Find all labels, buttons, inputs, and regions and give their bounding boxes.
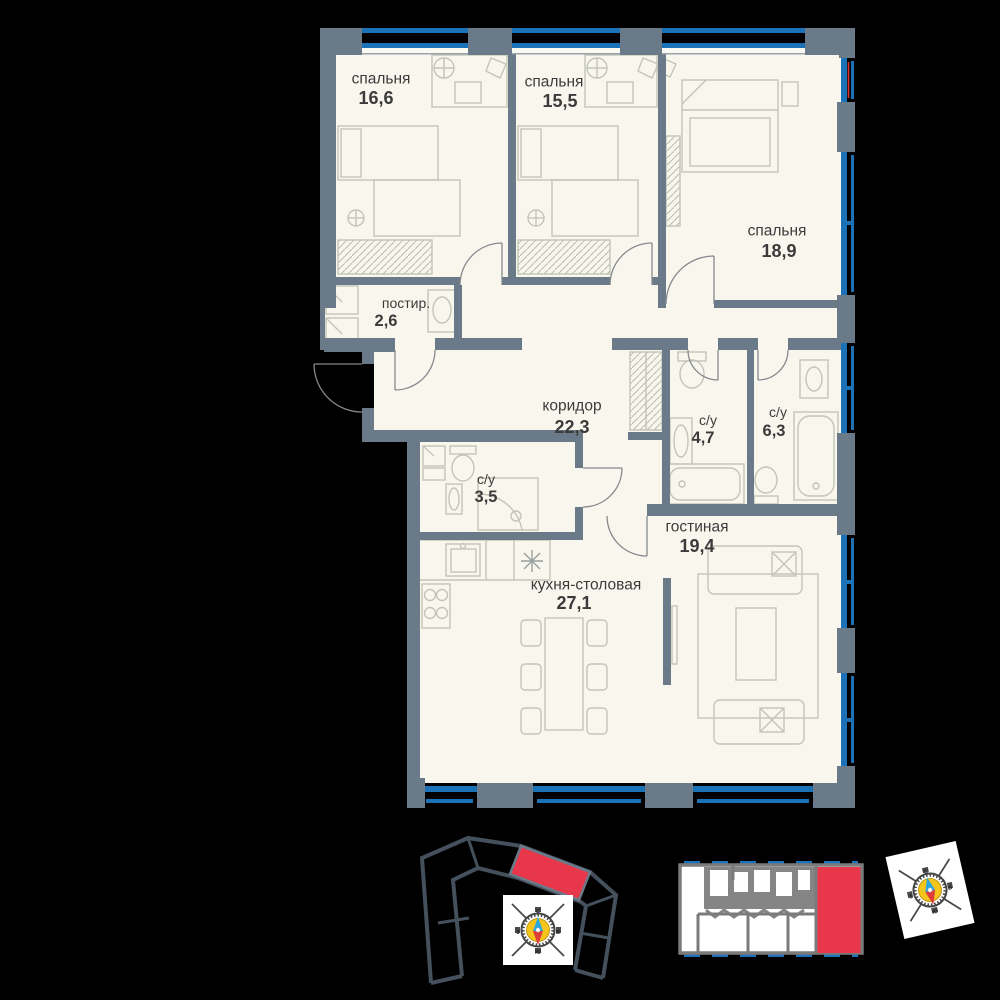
svg-text:С: С bbox=[536, 909, 540, 915]
key-plan-apartment-highlight bbox=[818, 867, 861, 953]
room-label-bathroom-1-area: 4,7 bbox=[692, 430, 715, 447]
building-site-plan: С Ю З В bbox=[418, 828, 628, 998]
svg-text:В: В bbox=[556, 930, 560, 936]
room-label-bathroom-1-name: с/у bbox=[699, 413, 717, 427]
room-label-corridor-area: 22,3 bbox=[554, 418, 589, 436]
room-label-bathroom-3-area: 3,5 bbox=[475, 489, 498, 506]
room-label-bedroom-3-name: спальня bbox=[748, 223, 807, 239]
room-label-laundry-area: 2,6 bbox=[375, 313, 398, 330]
room-label-bathroom-3-name: с/у bbox=[477, 472, 495, 486]
room-label-bedroom-3-area: 18,9 bbox=[761, 242, 796, 260]
room-label-bedroom-2-area: 15,5 bbox=[542, 92, 577, 110]
room-label-kitchen-area: 27,1 bbox=[556, 594, 591, 612]
room-label-bedroom-2-name: спальня bbox=[525, 74, 584, 90]
room-label-kitchen-name: кухня-столовая bbox=[531, 577, 641, 593]
compass-icon: С Ю З В bbox=[512, 904, 564, 956]
room-label-bathroom-2-area: 6,3 bbox=[763, 423, 786, 440]
room-label-laundry-name: постир. bbox=[382, 296, 430, 310]
room-label-bedroom-1-name: спальня bbox=[352, 71, 411, 87]
svg-text:З: З bbox=[516, 930, 520, 936]
room-label-bedroom-1-area: 16,6 bbox=[358, 89, 393, 107]
compass-card-tilted: С Ю З В bbox=[878, 840, 988, 950]
svg-text:Ю: Ю bbox=[535, 950, 541, 956]
room-label-living-area: 19,4 bbox=[679, 537, 714, 555]
room-label-bathroom-2-name: с/у bbox=[769, 405, 787, 419]
room-label-corridor-name: коридор bbox=[542, 398, 601, 414]
room-label-living-name: гостиная bbox=[665, 519, 728, 535]
floor-key-plan bbox=[676, 858, 876, 968]
screenshot-canvas: спальня 16,6 спальня 15,5 спальня 18,9 п… bbox=[0, 0, 1000, 1000]
